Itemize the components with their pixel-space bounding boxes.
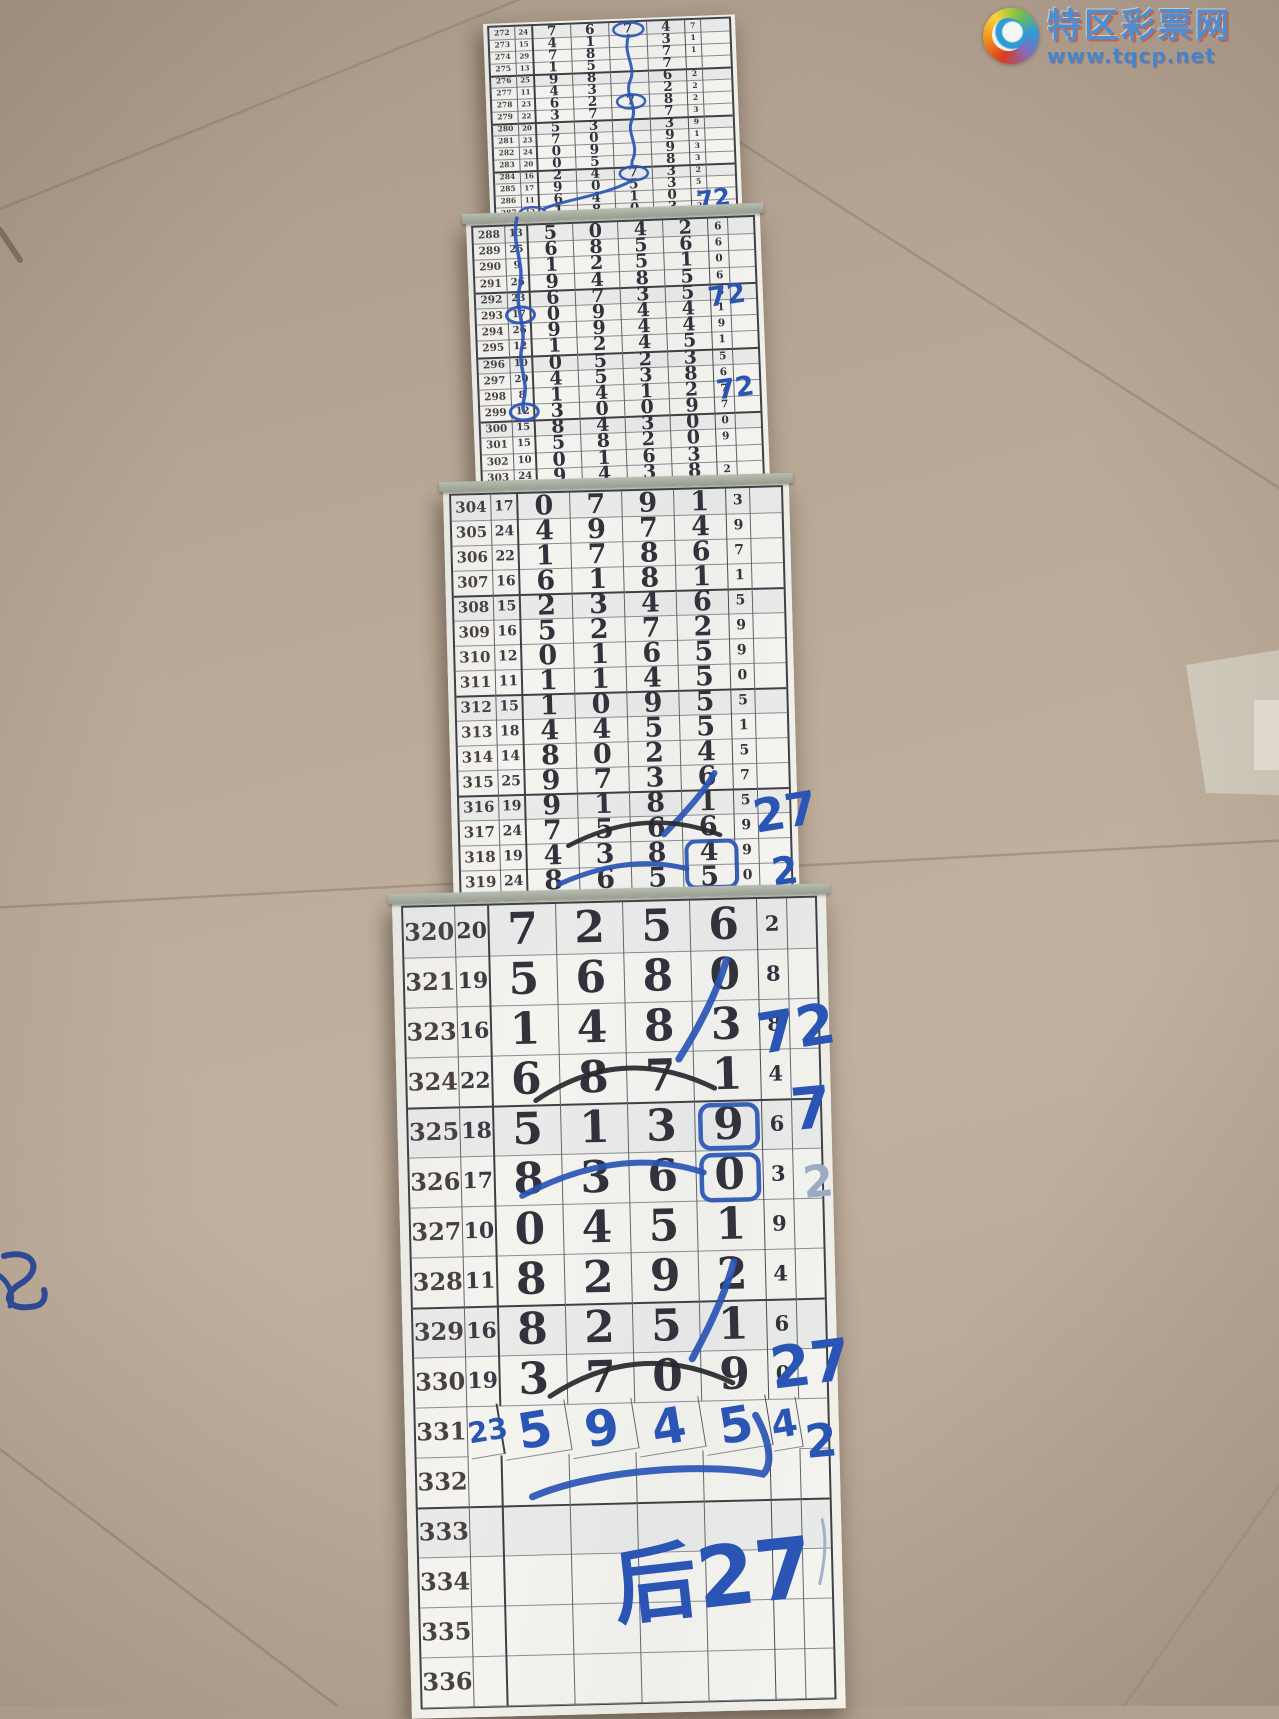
sum-cell: 15	[496, 694, 524, 721]
digit-cell: 1	[492, 1004, 560, 1057]
margin-cell	[756, 712, 788, 739]
paper-scrap-highlight	[1254, 700, 1279, 770]
tail-digit-cell: 5	[713, 347, 734, 365]
sum-cell: 19	[499, 794, 527, 821]
tail-digit-cell: 6	[767, 1298, 798, 1350]
digit-cell: 6	[493, 1054, 561, 1108]
chart-strip-rows-272-287: 2722476747273154131274297871275131572762…	[483, 14, 743, 226]
digit-cell	[574, 1652, 642, 1705]
sum-cell: 16	[494, 619, 522, 646]
digit-cell	[640, 1601, 708, 1654]
row-index-cell: 309	[454, 620, 495, 647]
row-index-cell: 313	[457, 720, 498, 747]
chart-strip-rows-320-336: 3202072562321195680832316148383242268714…	[392, 893, 846, 1718]
tail-digit-cell: 0	[715, 412, 736, 430]
site-url: www.tqcp.net	[1047, 44, 1232, 68]
digit-cell: 1	[694, 1049, 762, 1103]
digit-cell: 4	[632, 1396, 706, 1457]
sum-cell	[469, 1455, 504, 1508]
tail-digit-cell	[774, 1598, 805, 1650]
table-row: 336	[421, 1647, 834, 1707]
digit-cell: 3	[628, 1101, 696, 1154]
tail-digit-cell: 2	[757, 898, 788, 950]
margin-cell	[754, 637, 786, 664]
row-index-cell: 333	[418, 1506, 471, 1558]
site-name: 特区彩票网	[1047, 8, 1232, 44]
digit-cell	[573, 1602, 641, 1655]
tail-digit-cell	[775, 1648, 806, 1700]
tail-digit-cell: 9	[735, 838, 760, 865]
digit-cell	[569, 1452, 637, 1506]
digit-cell: 0	[691, 949, 759, 1002]
row-index-cell: 335	[420, 1606, 473, 1658]
sum-cell: 19	[456, 956, 491, 1008]
digit-cell	[708, 1649, 776, 1702]
tail-digit-cell: 3	[726, 488, 751, 515]
digit-cell: 1	[700, 1299, 768, 1352]
margin-cell	[787, 898, 816, 950]
tail-digit-cell: 9	[730, 638, 755, 665]
floor-pen-scribble	[0, 1254, 45, 1307]
row-index-cell: 321	[404, 956, 457, 1008]
digit-cell: 5	[623, 901, 691, 954]
digit-cell	[707, 1599, 775, 1652]
digit-cell: 7	[567, 1352, 635, 1405]
margin-cell	[759, 812, 791, 839]
sum-cell: 22	[459, 1056, 494, 1109]
digit-cell	[505, 1554, 573, 1607]
row-index-cell: 328	[412, 1256, 465, 1309]
margin-cell	[755, 687, 787, 714]
photo-scene: 2722476747273154131274297871275131572762…	[0, 0, 1279, 1706]
sum-cell: 16	[465, 1306, 500, 1358]
row-index-cell: 323	[406, 1006, 459, 1058]
margin-cell	[800, 1447, 829, 1500]
digit-cell: 9	[565, 1398, 639, 1459]
digit-cell: 4	[563, 1202, 631, 1255]
site-logo-icon	[983, 8, 1039, 64]
digit-cell: 3	[500, 1354, 568, 1407]
number-grid: 2722476747273154131274297871275131572762…	[487, 16, 738, 221]
row-index-cell: 312	[456, 695, 497, 722]
tail-digit-cell: 4	[766, 1248, 797, 1301]
site-watermark-text: 特区彩票网 www.tqcp.net	[1047, 8, 1232, 68]
chart-strip-rows-288-303: 2881350426289256856629091251029126948562…	[466, 213, 770, 494]
digit-cell: 5	[633, 1301, 701, 1354]
margin-cell	[794, 1198, 823, 1250]
sum-cell: 19	[466, 1355, 501, 1407]
tail-digit-cell: 6	[762, 1098, 793, 1150]
margin-cell	[791, 1048, 820, 1101]
margin-cell	[803, 1547, 832, 1599]
row-index-cell: 311	[456, 670, 497, 698]
sum-cell: 10	[462, 1206, 497, 1258]
digit-cell: 5	[494, 1104, 562, 1157]
margin-cell	[799, 1398, 828, 1450]
row-index-cell: 308	[454, 595, 495, 622]
digit-cell	[507, 1654, 575, 1707]
row-index-cell: 329	[413, 1306, 466, 1358]
number-grid: 2881350426289256856629091251029126948562…	[471, 215, 765, 489]
tail-digit-cell: 9	[729, 613, 754, 640]
margin-cell	[753, 587, 785, 614]
chart-strip-rows-304-319: 3041707913305244974930622178673071661811…	[443, 483, 800, 904]
digit-cell: 9	[695, 1099, 763, 1152]
digit-cell: 8	[499, 1304, 567, 1357]
tail-digit-cell: 0	[731, 663, 756, 691]
row-index-cell: 334	[419, 1556, 472, 1608]
margin-cell	[759, 837, 791, 864]
sum-cell	[472, 1605, 507, 1657]
digit-cell: 7	[489, 904, 557, 957]
digit-cell: 2	[566, 1302, 634, 1355]
number-grid: 3202072562321195680832316148383242268714…	[401, 896, 837, 1710]
digit-cell	[636, 1451, 704, 1505]
sum-cell: 16	[458, 1006, 493, 1058]
row-index-cell: 315	[458, 770, 499, 798]
margin-cell	[751, 512, 783, 539]
sum-cell: 16	[493, 569, 521, 597]
digit-cell	[572, 1552, 640, 1605]
row-index-cell: 332	[417, 1456, 470, 1509]
digit-cell: 2	[699, 1249, 767, 1303]
margin-cell	[758, 787, 790, 814]
sum-cell: 18	[497, 719, 525, 746]
digit-cell: 0	[496, 1204, 564, 1257]
row-index-cell: 317	[460, 820, 501, 847]
tail-digit-cell	[773, 1548, 804, 1600]
tail-digit-cell: 7	[727, 538, 752, 565]
digit-cell: 8	[624, 951, 692, 1004]
digit-cell: 0	[696, 1149, 764, 1202]
sum-cell: 24	[492, 519, 520, 546]
sum-cell: 12	[495, 644, 523, 671]
row-index-cell: 318	[460, 845, 501, 872]
sum-cell: 17	[491, 494, 519, 521]
digit-cell	[703, 1449, 771, 1503]
digit-cell: 8	[495, 1154, 563, 1207]
floor-dark-mark	[0, 230, 20, 260]
sum-cell: 24	[500, 819, 528, 846]
tail-digit-cell: 8	[759, 998, 790, 1050]
sum-cell: 15	[494, 594, 522, 621]
digit-cell: 9	[701, 1349, 769, 1402]
margin-cell	[796, 1248, 825, 1301]
sum-cell: 22	[492, 544, 520, 571]
digit-cell: 6	[629, 1151, 697, 1204]
row-index-cell: 320	[403, 906, 456, 958]
row-index-cell: 310	[455, 645, 496, 672]
row-index-cell: 336	[421, 1656, 474, 1708]
row-index-cell: 305	[452, 520, 493, 547]
sum-cell: 11	[496, 669, 524, 697]
digit-cell: 5	[498, 1400, 572, 1461]
sum-cell	[471, 1555, 506, 1607]
site-logo-inner-swirl	[992, 18, 1025, 51]
tail-digit-cell: 9	[764, 1198, 795, 1250]
tail-digit-cell: 5	[729, 588, 754, 615]
margin-cell	[788, 948, 817, 1000]
tail-digit-cell: 4	[761, 1048, 792, 1101]
margin-cell	[755, 662, 787, 690]
row-index-cell: 307	[453, 570, 494, 598]
tail-digit-cell: 0	[768, 1348, 799, 1400]
tail-digit-cell	[770, 1448, 801, 1501]
digit-cell: 7	[627, 1051, 695, 1105]
digit-cell	[705, 1499, 773, 1552]
margin-cell	[792, 1098, 821, 1150]
margin-cell	[805, 1647, 834, 1699]
digit-cell	[506, 1604, 574, 1657]
tail-digit-cell: 7	[733, 763, 758, 791]
row-index-cell: 327	[410, 1206, 463, 1258]
digit-cell: 2	[565, 1252, 633, 1306]
margin-cell	[798, 1348, 827, 1400]
digit-cell: 8	[625, 1001, 693, 1054]
row-index-cell: 326	[409, 1156, 462, 1208]
row-index-cell: 331	[415, 1406, 468, 1458]
digit-cell: 1	[697, 1199, 765, 1252]
digit-cell: 8	[498, 1254, 566, 1308]
digit-cell: 6	[690, 899, 758, 952]
sum-cell: 17	[461, 1156, 496, 1208]
digit-cell: 5	[490, 954, 558, 1007]
margin-cell	[757, 737, 789, 764]
digit-cell	[571, 1502, 639, 1555]
digit-cell: 2	[556, 902, 624, 955]
margin-cell	[802, 1497, 831, 1549]
tail-digit-cell: 8	[758, 948, 789, 1000]
digit-cell: 5	[699, 1395, 773, 1456]
margin-cell	[804, 1597, 833, 1649]
sum-cell: 19	[500, 844, 528, 871]
digit-cell	[641, 1650, 709, 1703]
margin-cell	[751, 537, 783, 564]
digit-cell: 4	[558, 1002, 626, 1055]
digit-cell: 3	[562, 1152, 630, 1205]
sum-cell	[473, 1655, 508, 1707]
digit-cell	[638, 1501, 706, 1554]
site-watermark: 特区彩票网 www.tqcp.net	[983, 8, 1232, 68]
row-index-cell: 324	[407, 1056, 460, 1109]
margin-cell	[789, 998, 818, 1050]
tail-digit-cell: 3	[763, 1148, 794, 1200]
digit-cell: 1	[561, 1102, 629, 1155]
tail-digit-cell: 1	[732, 713, 757, 740]
row-index-cell: 325	[408, 1106, 461, 1158]
row-index-cell: 330	[414, 1356, 467, 1408]
digit-cell: 8	[560, 1052, 628, 1106]
sum-cell: 11	[464, 1256, 499, 1309]
digit-cell	[639, 1551, 707, 1604]
tail-digit-cell: 5	[734, 788, 759, 815]
margin-cell	[757, 762, 789, 790]
tail-digit-cell: 9	[735, 813, 760, 840]
tail-digit-cell: 5	[733, 738, 758, 765]
row-index-cell: 304	[451, 495, 492, 522]
digit-cell	[503, 1454, 571, 1508]
digit-cell: 0	[634, 1351, 702, 1404]
digit-cell	[706, 1549, 774, 1602]
tail-digit-cell: 8	[710, 283, 731, 301]
sum-cell: 25	[498, 769, 526, 797]
digit-cell: 5	[630, 1201, 698, 1254]
tail-digit-cell	[772, 1498, 803, 1550]
digit-cell: 3	[692, 999, 760, 1052]
digit-cell: 6	[557, 952, 625, 1005]
margin-cell	[753, 612, 785, 639]
digit-cell: 9	[632, 1251, 700, 1305]
sum-cell: 18	[460, 1106, 495, 1158]
tail-digit-cell: 9	[727, 513, 752, 540]
sum-cell: 14	[498, 744, 526, 771]
margin-cell	[750, 487, 782, 514]
tail-digit-cell: 5	[731, 688, 756, 715]
tail-digit-cell: 1	[728, 563, 753, 591]
margin-cell	[752, 562, 784, 590]
digit-cell	[504, 1504, 572, 1557]
margin-cell	[797, 1298, 826, 1350]
row-index-cell: 306	[452, 545, 493, 572]
margin-cell	[793, 1148, 822, 1200]
sum-cell: 20	[455, 906, 490, 958]
row-index-cell: 314	[458, 745, 499, 772]
number-grid: 3041707913305244974930622178673071661811…	[449, 485, 793, 898]
sum-cell	[470, 1505, 505, 1557]
row-index-cell: 316	[459, 795, 500, 822]
